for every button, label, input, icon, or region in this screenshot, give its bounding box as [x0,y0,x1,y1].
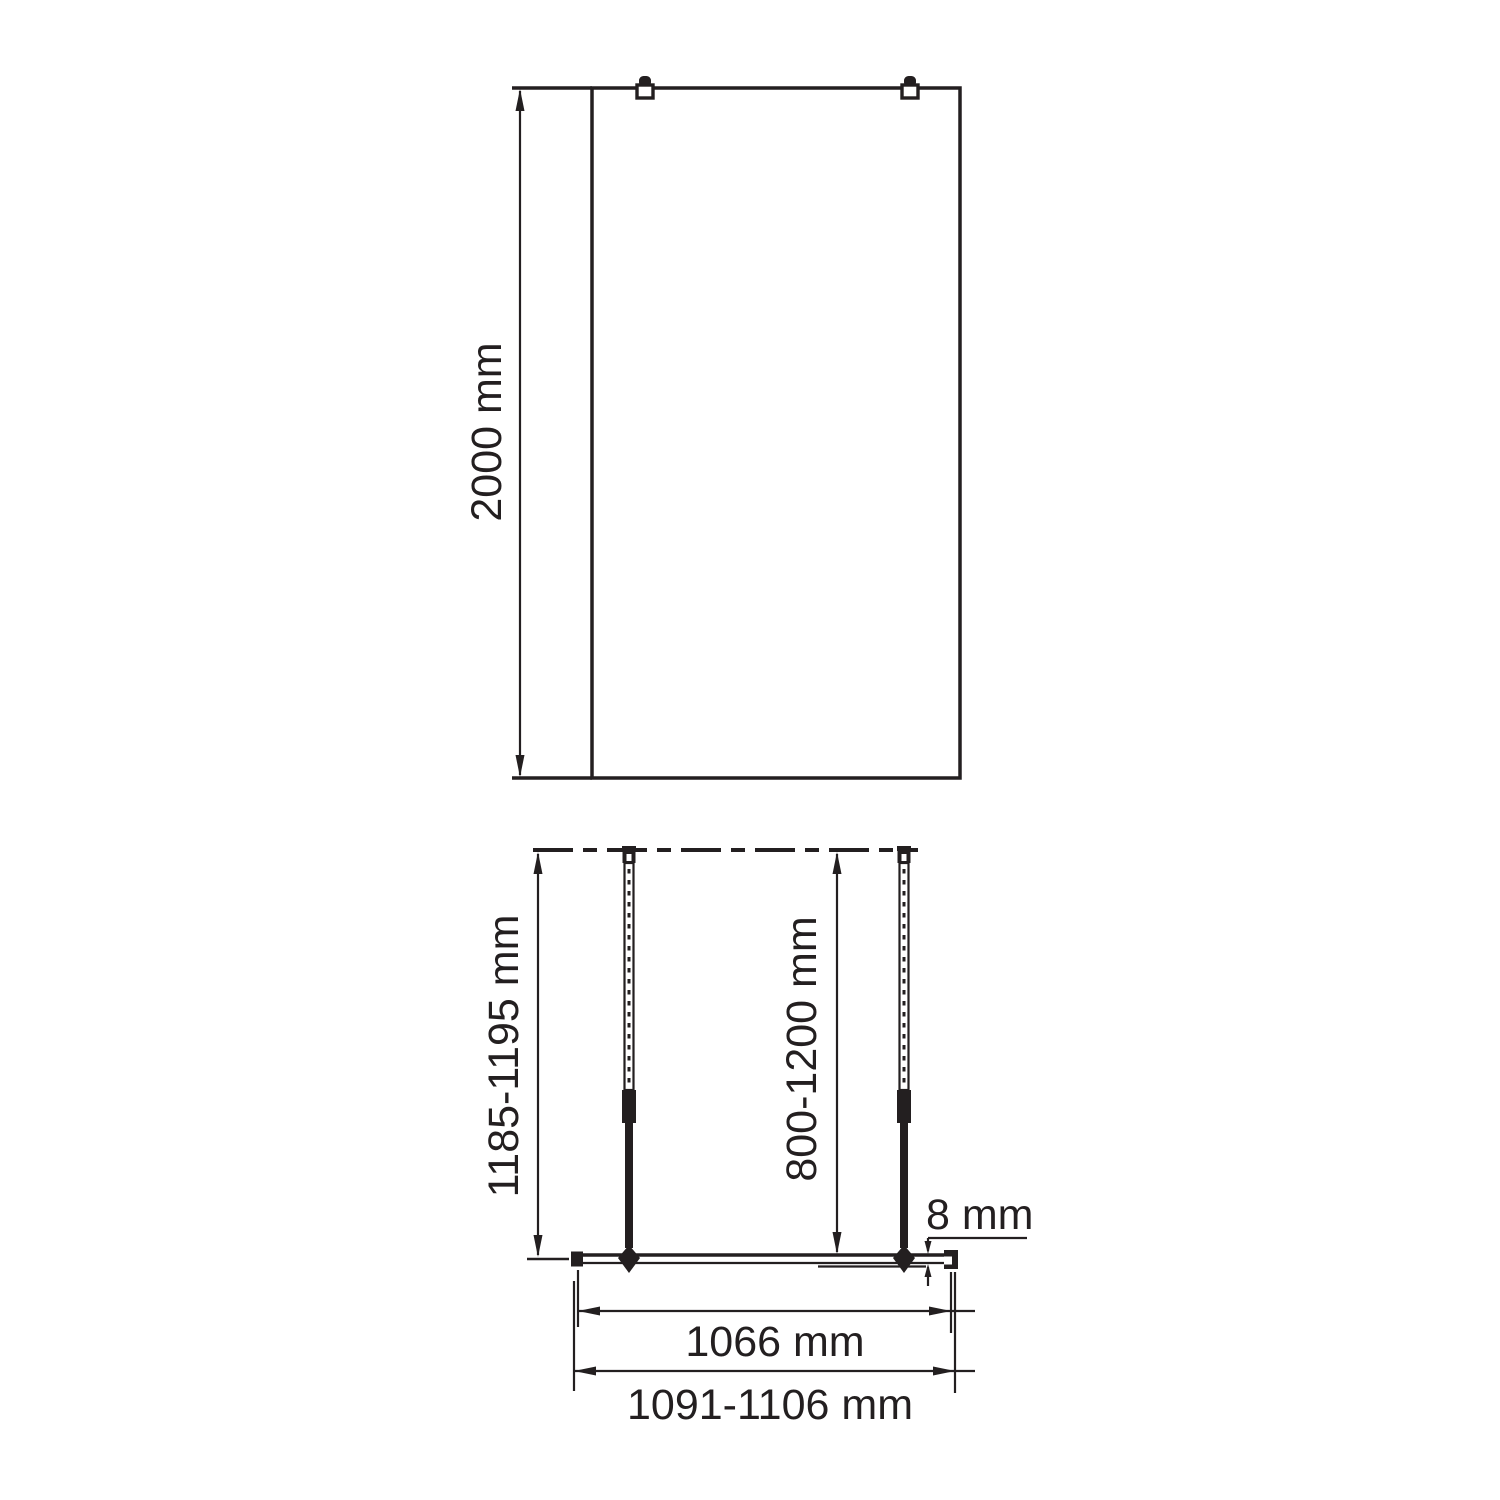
clamp-body-icon [637,85,653,98]
overall-width-label: 1091-1106 mm [627,1381,913,1429]
arrow-right-icon [929,1307,951,1316]
arrow-down-icon [516,755,525,777]
clamp-body-icon [902,85,918,98]
support-bar-left [618,846,640,1273]
bar-bracket-notch [902,854,907,861]
front-view: 2000 mm [463,76,960,778]
arrow-left-icon [578,1307,600,1316]
drawing-canvas: 2000 mm 1185-1195 mm 800- [0,0,1500,1500]
arrow-right-icon [933,1367,955,1376]
arrow-down-icon [833,1232,842,1254]
bar-glass-connector [618,1245,640,1273]
glass-end-cap [571,1252,583,1267]
dimension-bar-length: 1185-1195 mm [480,852,569,1259]
mounting-clamp-right [902,76,918,98]
shower-screen-technical-drawing: 2000 mm 1185-1195 mm 800- [0,0,1500,1500]
arrow-up-icon [516,89,525,111]
bar-telescopic-tube [900,863,909,1090]
glass-panel-front [592,88,960,778]
bar-locking-sleeve [622,1090,636,1123]
bar-locking-sleeve [897,1090,911,1123]
support-bar-right [893,846,915,1273]
glass-width-label: 1066 mm [685,1318,864,1366]
dimension-overall-width: 1091-1106 mm [574,1367,975,1430]
glass-thickness-label: 8 mm [926,1191,1034,1239]
arrow-up-icon [534,852,543,874]
arrow-down-icon [534,1235,543,1257]
bar-rod [625,1123,633,1248]
dimension-glass-thickness: 8 mm [925,1191,1034,1286]
height-dimension-label: 2000 mm [463,342,511,521]
bar-bracket-notch [627,854,632,861]
bar-telescopic-tube [625,863,634,1090]
bar-rod [900,1123,908,1248]
mounting-clamp-left [637,76,653,98]
dimension-height-2000: 2000 mm [463,89,524,777]
arrow-left-icon [574,1367,596,1376]
wall-profile-slot [944,1257,952,1265]
wall-distance-label: 800-1200 mm [778,916,826,1181]
bar-length-label: 1185-1195 mm [480,915,528,1198]
arrow-up-icon [833,852,842,874]
plan-view: 1185-1195 mm 800-1200 mm [480,846,1033,1429]
dimension-glass-width: 1066 mm [578,1307,975,1367]
arrow-down-icon [925,1241,932,1254]
bar-glass-connector [893,1245,915,1273]
